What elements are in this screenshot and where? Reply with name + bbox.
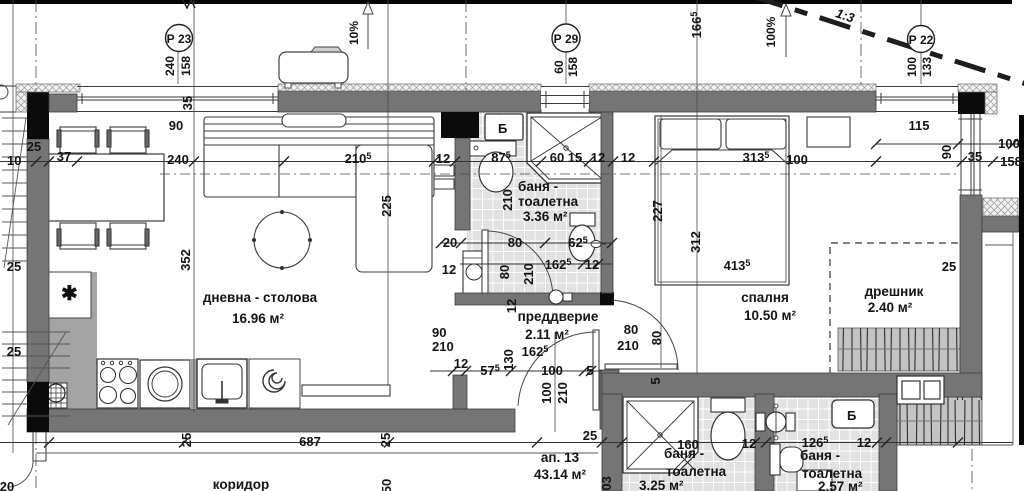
svg-text:10%: 10% (347, 21, 361, 45)
svg-text:Б: Б (498, 121, 507, 136)
svg-text:25: 25 (378, 433, 393, 447)
svg-text:312: 312 (688, 231, 703, 253)
svg-text:240: 240 (163, 56, 177, 76)
svg-text:Б: Б (847, 408, 856, 423)
svg-text:158: 158 (179, 56, 193, 76)
svg-text:90: 90 (432, 325, 446, 340)
svg-text:158: 158 (566, 57, 580, 77)
svg-text:210: 210 (432, 339, 454, 354)
svg-text:100: 100 (541, 363, 563, 378)
svg-text:тоалетна: тоалетна (518, 194, 579, 209)
svg-text:дрешник: дрешник (865, 284, 924, 299)
svg-text:60: 60 (550, 150, 564, 165)
svg-text:35: 35 (180, 96, 195, 110)
svg-text:12: 12 (454, 356, 468, 371)
svg-text:Р 29: Р 29 (554, 32, 579, 46)
svg-text:преддверие: преддверие (518, 309, 599, 324)
svg-text:12: 12 (621, 150, 635, 165)
svg-text:43.14 м²: 43.14 м² (534, 467, 587, 482)
svg-text:ап. 13: ап. 13 (541, 450, 580, 465)
svg-text:352: 352 (178, 249, 193, 271)
svg-text:80: 80 (649, 331, 664, 345)
svg-text:80: 80 (624, 322, 638, 337)
svg-text:5: 5 (648, 377, 663, 384)
svg-text:100: 100 (998, 136, 1020, 151)
svg-text:90: 90 (939, 145, 954, 159)
svg-text:12: 12 (442, 262, 456, 277)
svg-text:50: 50 (379, 479, 394, 491)
svg-text:баня -: баня - (518, 179, 558, 194)
svg-text:коридор: коридор (213, 477, 269, 491)
svg-text:12: 12 (436, 151, 450, 166)
svg-text:тоалетна: тоалетна (666, 464, 727, 479)
svg-text:12: 12 (504, 299, 519, 313)
svg-text:25: 25 (27, 139, 41, 154)
svg-text:130: 130 (501, 349, 516, 371)
svg-text:✱: ✱ (61, 283, 78, 305)
svg-text:12: 12 (585, 257, 599, 272)
svg-text:158: 158 (1000, 154, 1022, 169)
svg-text:Р 23: Р 23 (167, 32, 192, 46)
svg-text:227: 227 (650, 200, 665, 222)
svg-text:225: 225 (379, 195, 394, 217)
svg-text:80: 80 (497, 265, 512, 279)
svg-text:203: 203 (599, 476, 614, 491)
svg-text:2.40 м²: 2.40 м² (868, 300, 913, 315)
svg-text:15: 15 (568, 150, 582, 165)
svg-text:210: 210 (521, 263, 536, 285)
svg-text:100: 100 (905, 57, 919, 77)
svg-text:80: 80 (508, 235, 522, 250)
svg-text:37: 37 (57, 149, 71, 164)
svg-text:25: 25 (583, 428, 597, 443)
svg-text:133: 133 (920, 57, 934, 77)
svg-text:10: 10 (7, 153, 21, 168)
svg-text:2.57 м²: 2.57 м² (818, 479, 863, 491)
svg-text:дневна - столова: дневна - столова (203, 290, 318, 305)
svg-text:5: 5 (586, 363, 593, 378)
svg-text:20: 20 (0, 479, 14, 491)
svg-text:115: 115 (909, 118, 930, 133)
svg-text:12: 12 (857, 435, 871, 450)
svg-text:100%: 100% (764, 16, 778, 47)
svg-text:60: 60 (552, 60, 566, 74)
svg-text:210: 210 (500, 189, 515, 211)
svg-text:210: 210 (617, 338, 639, 353)
svg-text:3.36 м²: 3.36 м² (523, 209, 568, 224)
svg-text:687: 687 (299, 434, 321, 449)
svg-text:100: 100 (786, 152, 808, 167)
svg-text:16.96 м²: 16.96 м² (232, 311, 285, 326)
svg-text:баня -: баня - (800, 448, 840, 463)
svg-text:12: 12 (742, 436, 756, 451)
svg-text:25: 25 (7, 344, 21, 359)
svg-text:25: 25 (942, 259, 956, 274)
svg-text:160: 160 (677, 437, 699, 452)
svg-text:25: 25 (179, 433, 194, 447)
svg-text:Р 22: Р 22 (909, 33, 934, 47)
svg-text:210: 210 (555, 382, 570, 404)
svg-text:12: 12 (591, 150, 605, 165)
svg-text:25: 25 (7, 259, 21, 274)
svg-text:100: 100 (539, 382, 554, 404)
svg-text:35: 35 (968, 149, 982, 164)
svg-text:10.50 м²: 10.50 м² (744, 308, 797, 323)
svg-text:3.25 м²: 3.25 м² (639, 478, 684, 491)
svg-text:спалня: спалня (741, 290, 789, 305)
svg-text:20: 20 (443, 235, 457, 250)
svg-text:2.11 м²: 2.11 м² (525, 327, 569, 342)
svg-text:90: 90 (169, 118, 183, 133)
svg-text:240: 240 (167, 152, 189, 167)
